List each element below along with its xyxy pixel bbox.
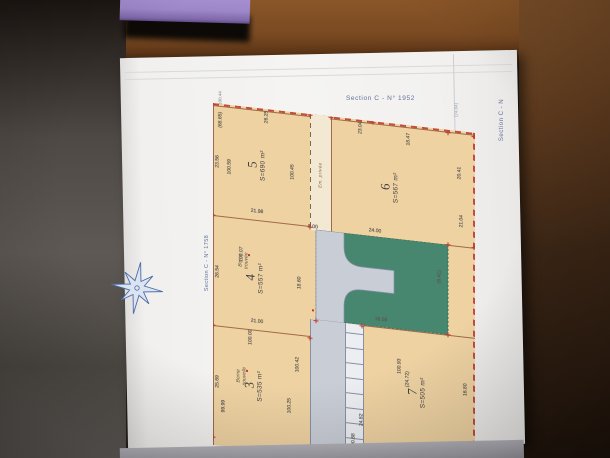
boundary-marker (312, 309, 314, 311)
boundary-tick (314, 318, 319, 324)
dimension-label: 18.58 (375, 317, 388, 323)
boundary-tick (308, 335, 313, 341)
table-shadow-left (0, 0, 126, 458)
dimension-label: 100.59 (228, 159, 233, 175)
purple-notebook (120, 0, 251, 24)
dimension-label: 23.56 (216, 155, 221, 168)
parcel-7-label: 7 S=505 m² (406, 376, 427, 409)
boundary-tick (213, 322, 216, 328)
boundary-tick (213, 212, 216, 218)
boundary-tick (446, 130, 451, 136)
section-label-left: Section C - N° 1758 (204, 235, 210, 291)
boundary-tick (213, 434, 216, 440)
parcel-7-area: S=505 m² (420, 377, 427, 409)
parcel-6-label: 6 S=567 m² (379, 170, 400, 203)
section-label-top-right: Section C - N° 1952 (346, 95, 415, 102)
boundary-tick (446, 242, 451, 248)
parcel-5-number: 5 (246, 148, 259, 180)
boundary-tick (213, 103, 216, 107)
dimension-label: 24.82 (360, 413, 365, 426)
section-label-right: Section C - N (499, 99, 505, 141)
paper-margin-rule (453, 54, 456, 140)
dimension-label: 16.80 (464, 383, 469, 396)
dimension-label: 26.25 (265, 111, 270, 124)
parcel-5-label: 5 S=690 m² (246, 148, 267, 181)
dimension-label: 21.04 (460, 215, 465, 228)
parcel-5-area: S=690 m² (260, 150, 267, 182)
dimension-label: 20.41 (458, 167, 463, 180)
wooden-table-right (519, 0, 610, 458)
boundary-tick (308, 224, 313, 230)
parcel-7-number: 7 (406, 376, 419, 408)
compass-rose-icon (107, 258, 168, 319)
dimension-label: 100.45 (291, 164, 296, 180)
parcel-6-area: S=567 m² (393, 172, 400, 204)
parcel-3-area: S=535 m² (257, 371, 264, 403)
dimension-label: 100.93 (398, 358, 403, 374)
dimension-label: 23.04 (359, 121, 364, 134)
parcel-4-area: S=557 m² (258, 263, 265, 295)
parcel-4-note: Borne trouvée (238, 251, 250, 270)
dimension-label: 21.98 (251, 209, 264, 215)
boundary-tick (472, 134, 476, 140)
parcel-3-note: Borne nouvelle (236, 367, 248, 386)
dimension-label: 18.60 (298, 276, 303, 289)
dimension-label: 99.99 (222, 400, 227, 413)
dimension-label: 21.00 (251, 319, 264, 325)
boundary-tick (446, 332, 451, 338)
parcel-6-number: 6 (379, 170, 392, 202)
dimension-label: 25.69 (216, 375, 221, 388)
dimension-label: 26.54 (216, 265, 221, 278)
boundary-tick (360, 323, 365, 329)
dimension-label: 100.00 (249, 329, 254, 345)
dimension-label: 100.25 (288, 398, 293, 414)
dimension-label: (68.65) (219, 112, 224, 128)
margin-tick-right: (24.04) (454, 103, 459, 117)
photo-frame: Em. privée (68.65)26.2523.56100.59100.45… (0, 0, 610, 458)
dimension-label: 18.47 (407, 133, 412, 146)
cadastral-plan: Em. privée (68.65)26.2523.56100.59100.45… (213, 103, 475, 458)
margin-tick-left-top: 100.44 (218, 91, 223, 105)
dimension-label: 24.00 (369, 228, 382, 234)
boundary-tick (472, 245, 476, 251)
dimension-label: (6.41) (438, 270, 443, 284)
dimension-label: 100.42 (296, 357, 301, 373)
